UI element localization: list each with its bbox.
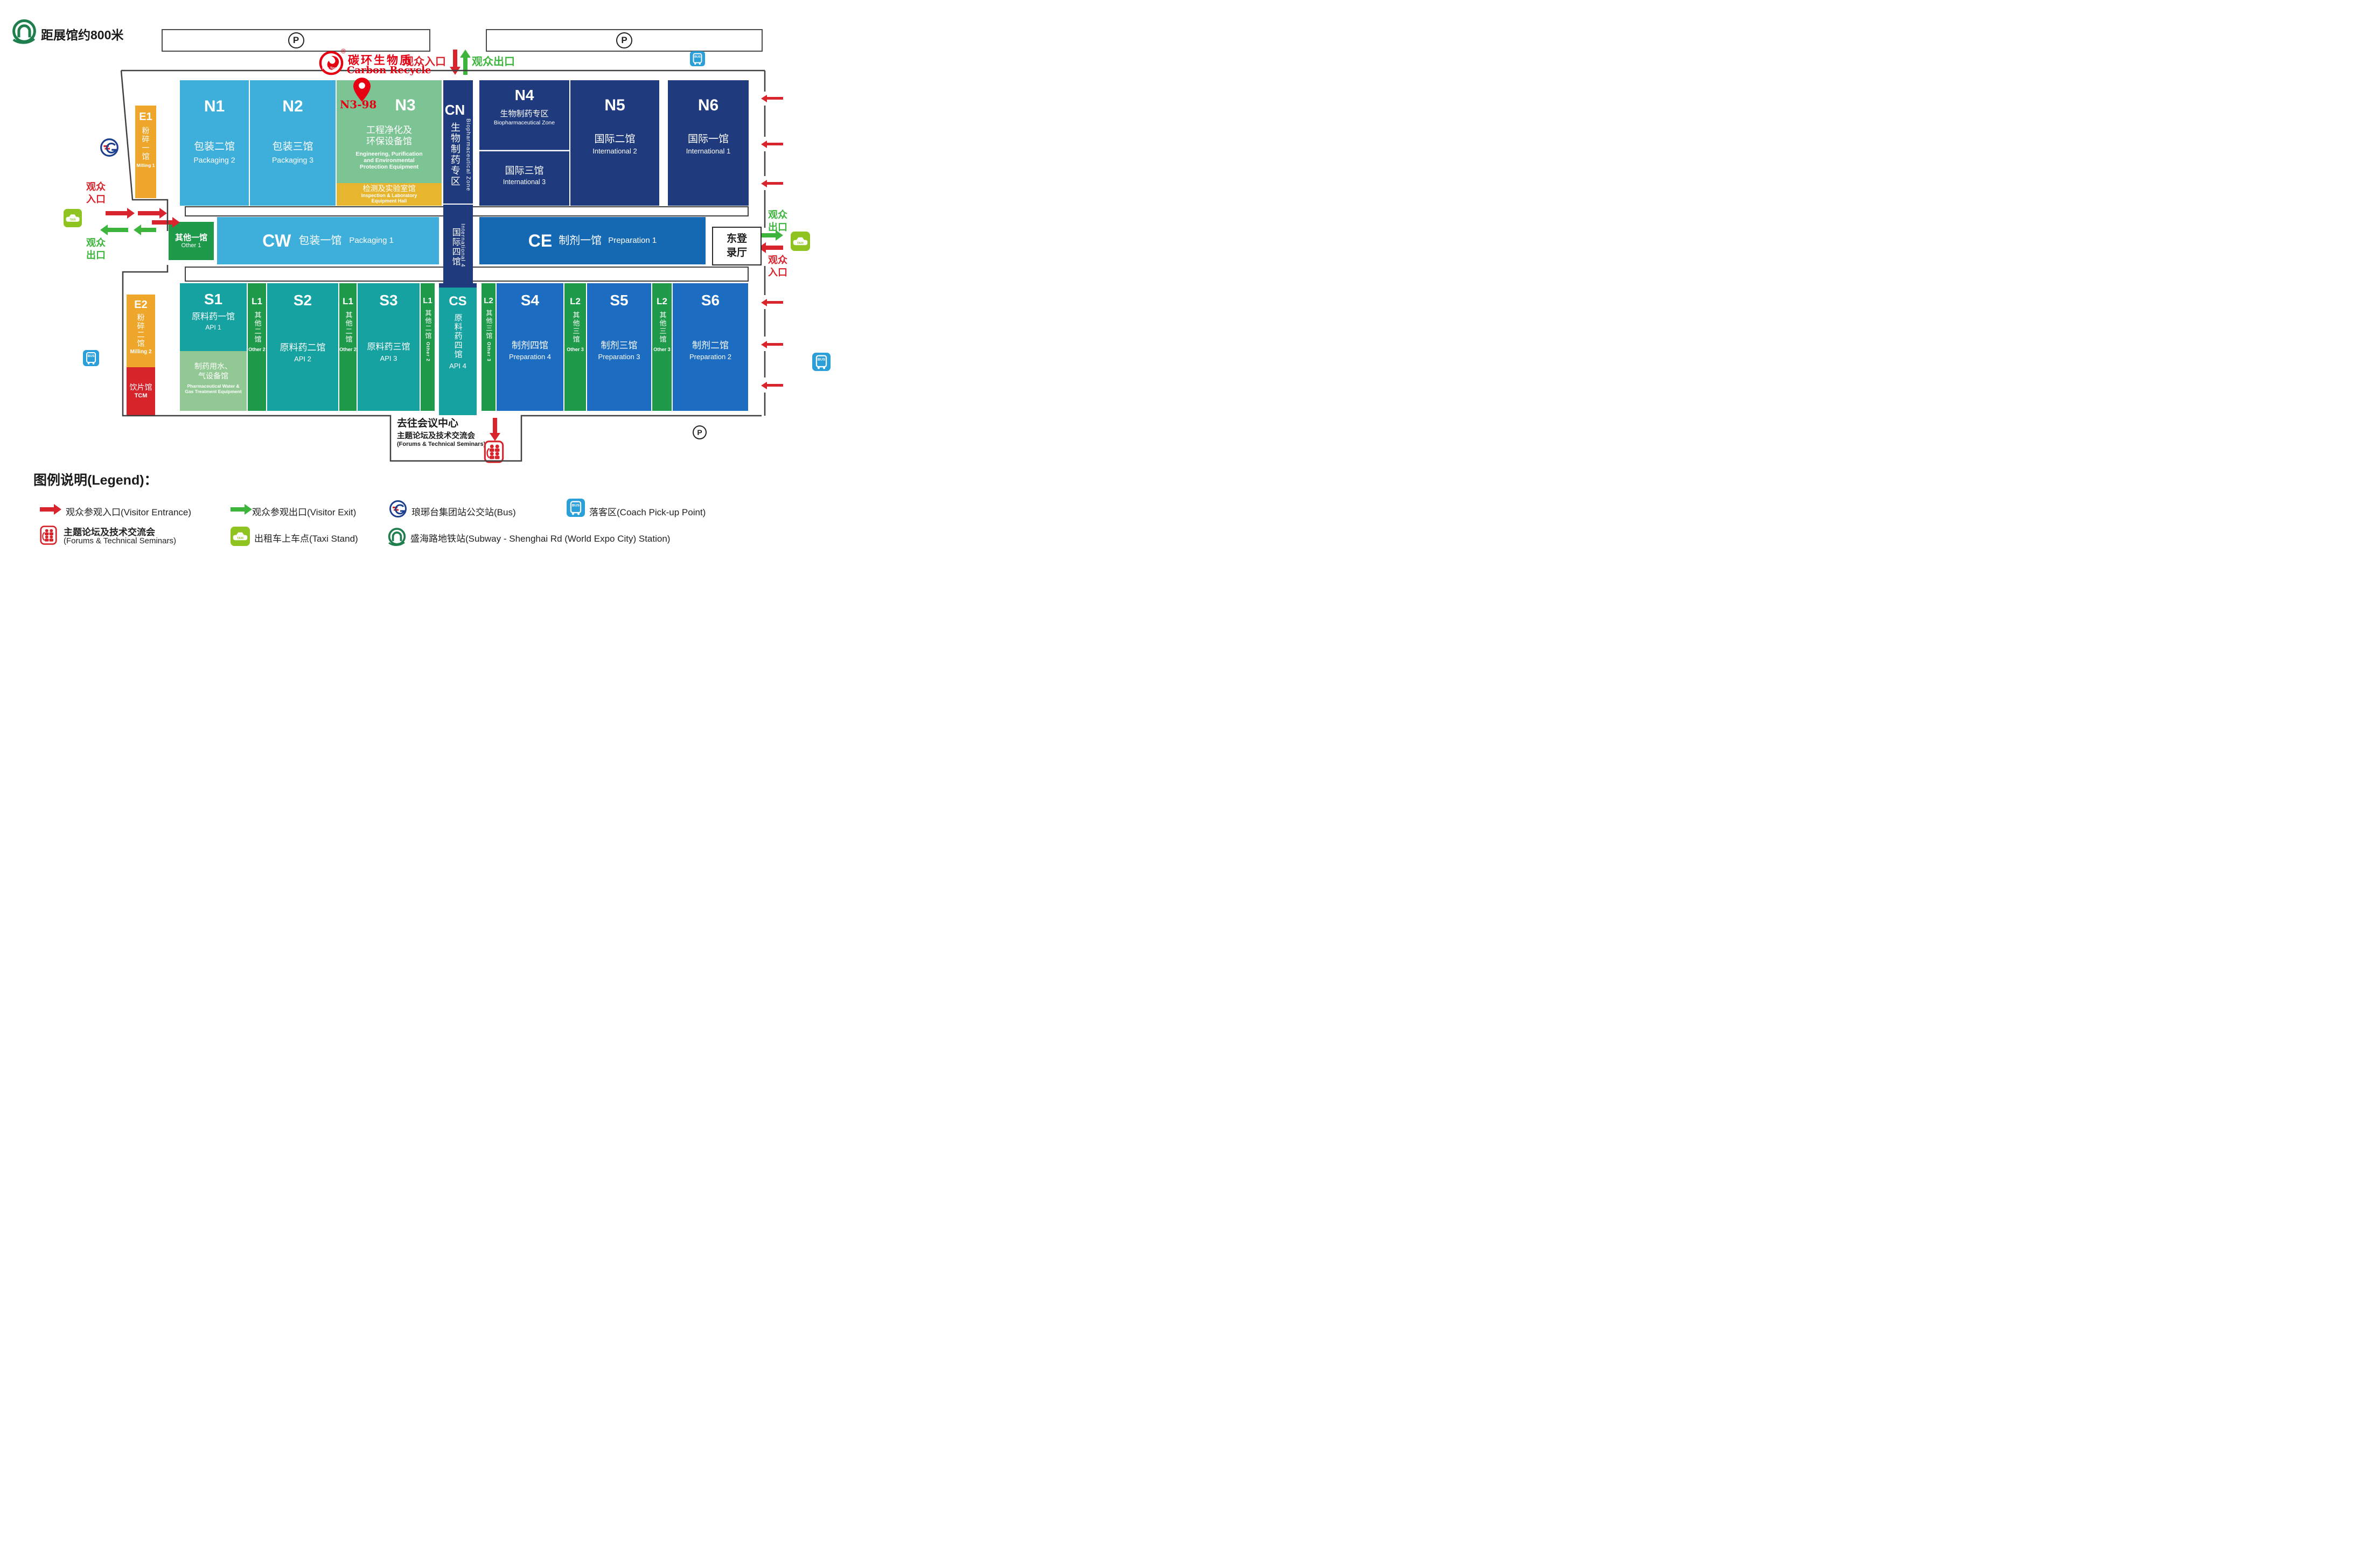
hall-name-en: Engineering, Purification — [355, 151, 422, 157]
svg-text:BUS: BUS — [88, 355, 95, 358]
hall-name-cn: 气设备馆 — [198, 372, 228, 380]
hall-name-en: Equipment Hall — [372, 198, 407, 204]
hall-code: N3 — [395, 96, 415, 115]
hall-cs: CS 原料药四馆 API 4 — [439, 283, 477, 415]
hall-name-cn: 其他三馆 — [485, 310, 492, 340]
hall-name-en: Inspection & Laboratory — [361, 193, 417, 198]
bus-station-logo-icon — [389, 500, 407, 518]
hall-name-cn: 其他二馆 — [344, 311, 352, 344]
conference-line1: 去往会议中心 — [397, 418, 485, 430]
hall-code: S1 — [204, 291, 222, 308]
hall-name-cn: 制剂三馆 — [601, 340, 638, 351]
legend-visitor-entrance: 观众参观入口(Visitor Entrance) — [66, 505, 191, 518]
hall-code: L1 — [343, 296, 353, 307]
hall-s2: S2 原料药二馆 API 2 — [267, 283, 338, 411]
hall-code: N1 — [204, 97, 225, 116]
brand-badge: Rec Tec — [322, 67, 336, 71]
hall-name-en: International 3 — [503, 178, 546, 186]
hall-name-cn: 粉碎二馆 — [136, 313, 145, 348]
hall-code: E2 — [134, 299, 147, 311]
hall-code: N2 — [282, 97, 303, 116]
hall-code: S6 — [701, 292, 720, 309]
hall-name-cn: 制剂二馆 — [692, 340, 729, 351]
hall-code: S2 — [294, 292, 312, 309]
hall-name-en: API 3 — [380, 355, 397, 363]
taxi-icon: TAXI — [231, 527, 250, 546]
hall-name-en: Preparation 3 — [598, 353, 640, 361]
left-entrance-label: 观众 入口 — [86, 181, 106, 205]
forum-icon — [40, 526, 57, 545]
hall-code: L1 — [423, 296, 432, 305]
hall-code: N6 — [698, 96, 718, 115]
svg-text:BUS: BUS — [572, 504, 580, 508]
legend-title: 图例说明(Legend)： — [33, 470, 158, 489]
hall-s1: S1 原料药一馆 API 1 — [180, 283, 247, 351]
parking-icon: P — [693, 425, 707, 439]
hall-name-en: Milling 1 — [137, 163, 155, 169]
hall-name-cn: 其他一馆 — [175, 233, 207, 242]
hall-name-cn: 生物制药专区 — [500, 109, 548, 118]
legend-coach: 落客区(Coach Pick-up Point) — [589, 505, 706, 518]
hall-l1-c: L1 其他二馆 Other 2 — [421, 283, 435, 411]
hall-name-cn: 制药用水、 — [194, 362, 232, 370]
hall-code: CW — [262, 231, 291, 251]
hall-name-en: TCM — [135, 393, 148, 400]
hall-n3: N3 工程净化及 环保设备馆 Engineering, Purification… — [337, 80, 442, 183]
hall-code: CN — [445, 102, 465, 118]
hall-name-en: Other 3 — [653, 347, 671, 352]
parking-strip-right: P — [486, 29, 763, 52]
hall-name-en: Preparation 4 — [509, 353, 551, 361]
svg-text:TAXI: TAXI — [237, 537, 243, 540]
conference-line2: 主题论坛及技术交流会 — [397, 432, 485, 441]
hall-name-cn: 制剂四馆 — [512, 340, 548, 351]
conference-arrow — [493, 418, 497, 433]
wall-arrow — [767, 301, 783, 304]
hall-ce: CE 制剂一馆 Preparation 1 — [479, 217, 706, 264]
hall-name-en: Gas Treatment Equipment — [185, 389, 241, 395]
hall-name-en: International 4 — [460, 223, 466, 268]
hall-inspection-lab: 检测及实验室馆 Inspection & Laboratory Equipmen… — [337, 183, 442, 206]
forum-icon — [484, 440, 504, 463]
legend-entrance-arrow-icon — [40, 507, 54, 512]
hall-name-cn: 包装三馆 — [272, 141, 313, 153]
hall-name-en: Protection Equipment — [360, 164, 418, 170]
left-exit-label: 观众 出口 — [86, 237, 106, 261]
hall-name-en: Other 3 — [567, 347, 584, 352]
hall-code: N5 — [604, 96, 625, 115]
hall-n4-international3: 国际三馆 International 3 — [479, 151, 569, 206]
svg-text:TAXI: TAXI — [797, 242, 804, 245]
hall-name-cn: 制剂一馆 — [559, 235, 602, 247]
coach-icon: BUS — [83, 350, 99, 366]
exit-arrow — [141, 228, 156, 232]
hall-name-cn: 其他三馆 — [571, 311, 580, 344]
hall-code: E1 — [139, 111, 152, 123]
hall-code: S4 — [521, 292, 539, 309]
distance-note: 距展馆约800米 — [41, 25, 123, 43]
hall-name-cn: 环保设备馆 — [366, 136, 412, 147]
legend-forums-line2: (Forums & Technical Seminars) — [64, 536, 176, 545]
coach-icon: BUS — [690, 51, 705, 66]
hall-name-cn: 检测及实验室馆 — [363, 184, 416, 193]
hall-name-en: Biopharmaceutical Zone — [494, 120, 555, 126]
hall-name-en: International 1 — [686, 148, 730, 156]
wall-arrow — [767, 384, 783, 387]
brand-reg-mark: ® — [341, 47, 346, 55]
hall-name-cn: 工程净化及 — [366, 125, 412, 136]
hall-name-en: Other 2 — [248, 347, 266, 352]
hall-n4-biopharma: N4 生物制药专区 Biopharmaceutical Zone — [479, 80, 569, 150]
parking-strip-left: P — [162, 29, 430, 52]
hall-code: L2 — [484, 296, 493, 305]
hall-cw: CW 包装一馆 Packaging 1 — [217, 217, 439, 264]
hall-international4: 国际四馆 International 4 — [443, 205, 473, 283]
hall-code: L1 — [252, 296, 262, 307]
taxi-icon: TAXI — [791, 232, 810, 251]
brand-name-en: Carbon Recycle — [347, 65, 431, 76]
hall-e2: E2 粉碎二馆 Milling 2 — [127, 295, 155, 367]
hall-name-en: Milling 2 — [130, 349, 152, 355]
hall-l1-b: L1 其他二馆 Other 2 — [339, 283, 357, 411]
hall-l2-c: L2 其他三馆 Other 3 — [652, 283, 672, 411]
entrance-arrow — [766, 246, 783, 250]
hall-pharma-water: 制药用水、 气设备馆 Pharmaceutical Water & Gas Tr… — [180, 351, 247, 411]
hall-l1-a: L1 其他二馆 Other 2 — [248, 283, 266, 411]
hall-name-en: Packaging 1 — [349, 236, 394, 245]
hall-name-cn: 其他二馆 — [253, 311, 261, 344]
hall-name-cn: 国际二馆 — [594, 134, 635, 145]
hall-name-cn: 东登录厅 — [725, 232, 749, 260]
conference-note: 去往会议中心 主题论坛及技术交流会 (Forums & Technical Se… — [397, 418, 485, 448]
svg-text:BUS: BUS — [818, 358, 826, 362]
top-entrance-arrow — [453, 50, 457, 67]
hall-name-cn: 粉碎一馆 — [141, 127, 150, 161]
subway-logo-icon — [388, 528, 406, 547]
hall-name-en: API 2 — [294, 355, 311, 363]
svg-text:BUS: BUS — [694, 55, 701, 59]
hall-n1: N1 包装二馆 Packaging 2 — [180, 80, 249, 206]
coach-icon: BUS — [567, 499, 585, 517]
conference-line3: (Forums & Technical Seminars) — [397, 441, 485, 448]
wall-arrow — [767, 143, 783, 145]
hall-code: L2 — [657, 296, 667, 307]
hall-name-cn: 原料药一馆 — [192, 312, 235, 322]
bus-station-logo-icon — [100, 138, 119, 157]
taxi-icon: TAXI — [64, 209, 82, 227]
svg-text:TAXI: TAXI — [69, 219, 76, 222]
hall-tcm: 饮片馆 TCM — [127, 367, 155, 415]
hall-name-en: and Environmental — [364, 157, 415, 164]
hall-name-en: Other 2 — [425, 342, 430, 362]
hall-code: L2 — [570, 296, 581, 307]
hall-name-en: Other 1 — [182, 242, 201, 249]
hall-code: S3 — [379, 292, 397, 309]
hall-e1: E1 粉碎一馆 Milling 1 — [135, 106, 156, 198]
hall-name-cn: 原料药三馆 — [367, 342, 410, 352]
hall-name-en: International 2 — [592, 148, 637, 156]
hall-n5: N5 国际二馆 International 2 — [570, 80, 659, 206]
legend-taxi: 出租车上车点(Taxi Stand) — [254, 531, 358, 544]
expo-floorplan: 距展馆约800米 P P ® Rec Tec 碳环生物质 Carbon Recy… — [0, 0, 833, 555]
hall-code: CS — [449, 294, 466, 309]
east-registration-hall: 东登录厅 — [712, 227, 762, 265]
hall-name-cn: 其他三馆 — [658, 311, 666, 344]
hall-name-cn: 原料药四馆 — [453, 313, 462, 359]
hall-s6: S6 制剂二馆 Preparation 2 — [673, 283, 748, 411]
hall-name-en: Packaging 3 — [272, 156, 313, 164]
top-exit-label: 观众出口 — [472, 55, 515, 69]
hall-name-cn: 生物制药专区 — [449, 122, 461, 187]
hall-l2-a: L2 其他三馆 Other 3 — [482, 283, 496, 411]
hall-name-cn: 包装一馆 — [298, 235, 341, 247]
carbon-recycle-logo-icon — [319, 51, 344, 75]
entrance-arrow — [152, 220, 172, 225]
legend-visitor-exit: 观众参观出口(Visitor Exit) — [252, 505, 356, 518]
hall-name-cn: 国际四馆 — [450, 228, 459, 267]
entrance-arrow — [138, 211, 159, 215]
hall-name-cn: 饮片馆 — [130, 383, 152, 391]
parking-icon: P — [288, 32, 304, 48]
hall-s5: S5 制剂三馆 Preparation 3 — [587, 283, 651, 411]
hall-name-en: API 4 — [449, 362, 466, 370]
top-exit-arrow — [463, 58, 468, 75]
hall-name-en: Packaging 2 — [193, 156, 235, 164]
wall-arrow — [767, 97, 783, 100]
wall-arrow — [767, 182, 783, 185]
hall-name-cn: 原料药二馆 — [280, 342, 326, 353]
coach-icon: BUS — [812, 353, 831, 371]
wall-arrow — [767, 343, 783, 346]
hall-name-cn: 其他二馆 — [424, 310, 431, 340]
hall-name-en: Biopharmaceutical Zone — [465, 118, 471, 191]
right-entrance-label: 观众 入口 — [768, 254, 787, 278]
hall-name-en: API 1 — [205, 324, 221, 332]
hall-code: CE — [528, 231, 552, 251]
booth-pin-label: N3-98 — [340, 98, 376, 111]
hall-n2: N2 包装三馆 Packaging 3 — [250, 80, 336, 206]
hall-s3: S3 原料药三馆 API 3 — [358, 283, 420, 411]
hall-name-en: Preparation 1 — [608, 236, 657, 245]
hall-code: S5 — [610, 292, 628, 309]
hall-code: N4 — [515, 87, 534, 104]
hall-l2-b: L2 其他三馆 Other 3 — [564, 283, 586, 411]
subway-logo-icon — [12, 19, 37, 45]
hall-name-cn: 国际三馆 — [505, 165, 544, 177]
exit-arrow — [108, 228, 128, 232]
parking-icon: P — [616, 32, 632, 48]
hall-name-en: Preparation 2 — [689, 353, 731, 361]
hall-name-en: Other 3 — [486, 342, 491, 362]
legend-exit-arrow-icon — [231, 507, 245, 512]
hall-name-cn: 国际一馆 — [688, 134, 729, 145]
hall-s4: S4 制剂四馆 Preparation 4 — [497, 283, 563, 411]
hall-n6: N6 国际一馆 International 1 — [668, 80, 749, 206]
hall-cn: CN 生物制药专区 Biopharmaceutical Zone — [443, 80, 473, 204]
hall-name-cn: 包装二馆 — [194, 141, 235, 153]
hall-name-en: Other 2 — [339, 347, 357, 352]
legend-bus: 琅琊台集团站公交站(Bus) — [411, 505, 516, 518]
entrance-arrow — [106, 211, 127, 215]
legend-subway: 盛海路地铁站(Subway - Shenghai Rd (World Expo … — [410, 531, 670, 544]
